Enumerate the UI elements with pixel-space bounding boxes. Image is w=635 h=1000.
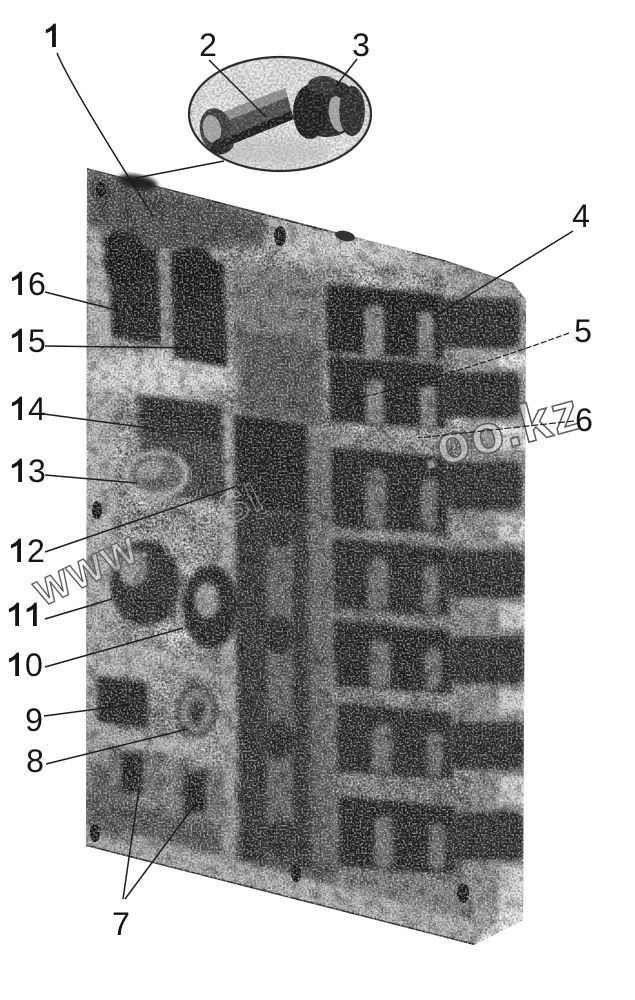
svg-text:2: 2 xyxy=(199,27,217,63)
svg-text:0: 0 xyxy=(25,647,43,683)
svg-text:4: 4 xyxy=(28,391,46,427)
svg-text:3: 3 xyxy=(28,453,46,489)
svg-text:4: 4 xyxy=(572,198,590,234)
svg-text:6: 6 xyxy=(575,402,593,438)
svg-text:2: 2 xyxy=(27,533,45,569)
svg-text:6: 6 xyxy=(28,266,46,302)
svg-text:7: 7 xyxy=(112,906,130,942)
svg-text:5: 5 xyxy=(574,313,592,349)
svg-text:9: 9 xyxy=(25,702,43,738)
svg-text:5: 5 xyxy=(28,323,46,359)
svg-text:8: 8 xyxy=(26,743,44,779)
svg-text:3: 3 xyxy=(352,27,370,63)
